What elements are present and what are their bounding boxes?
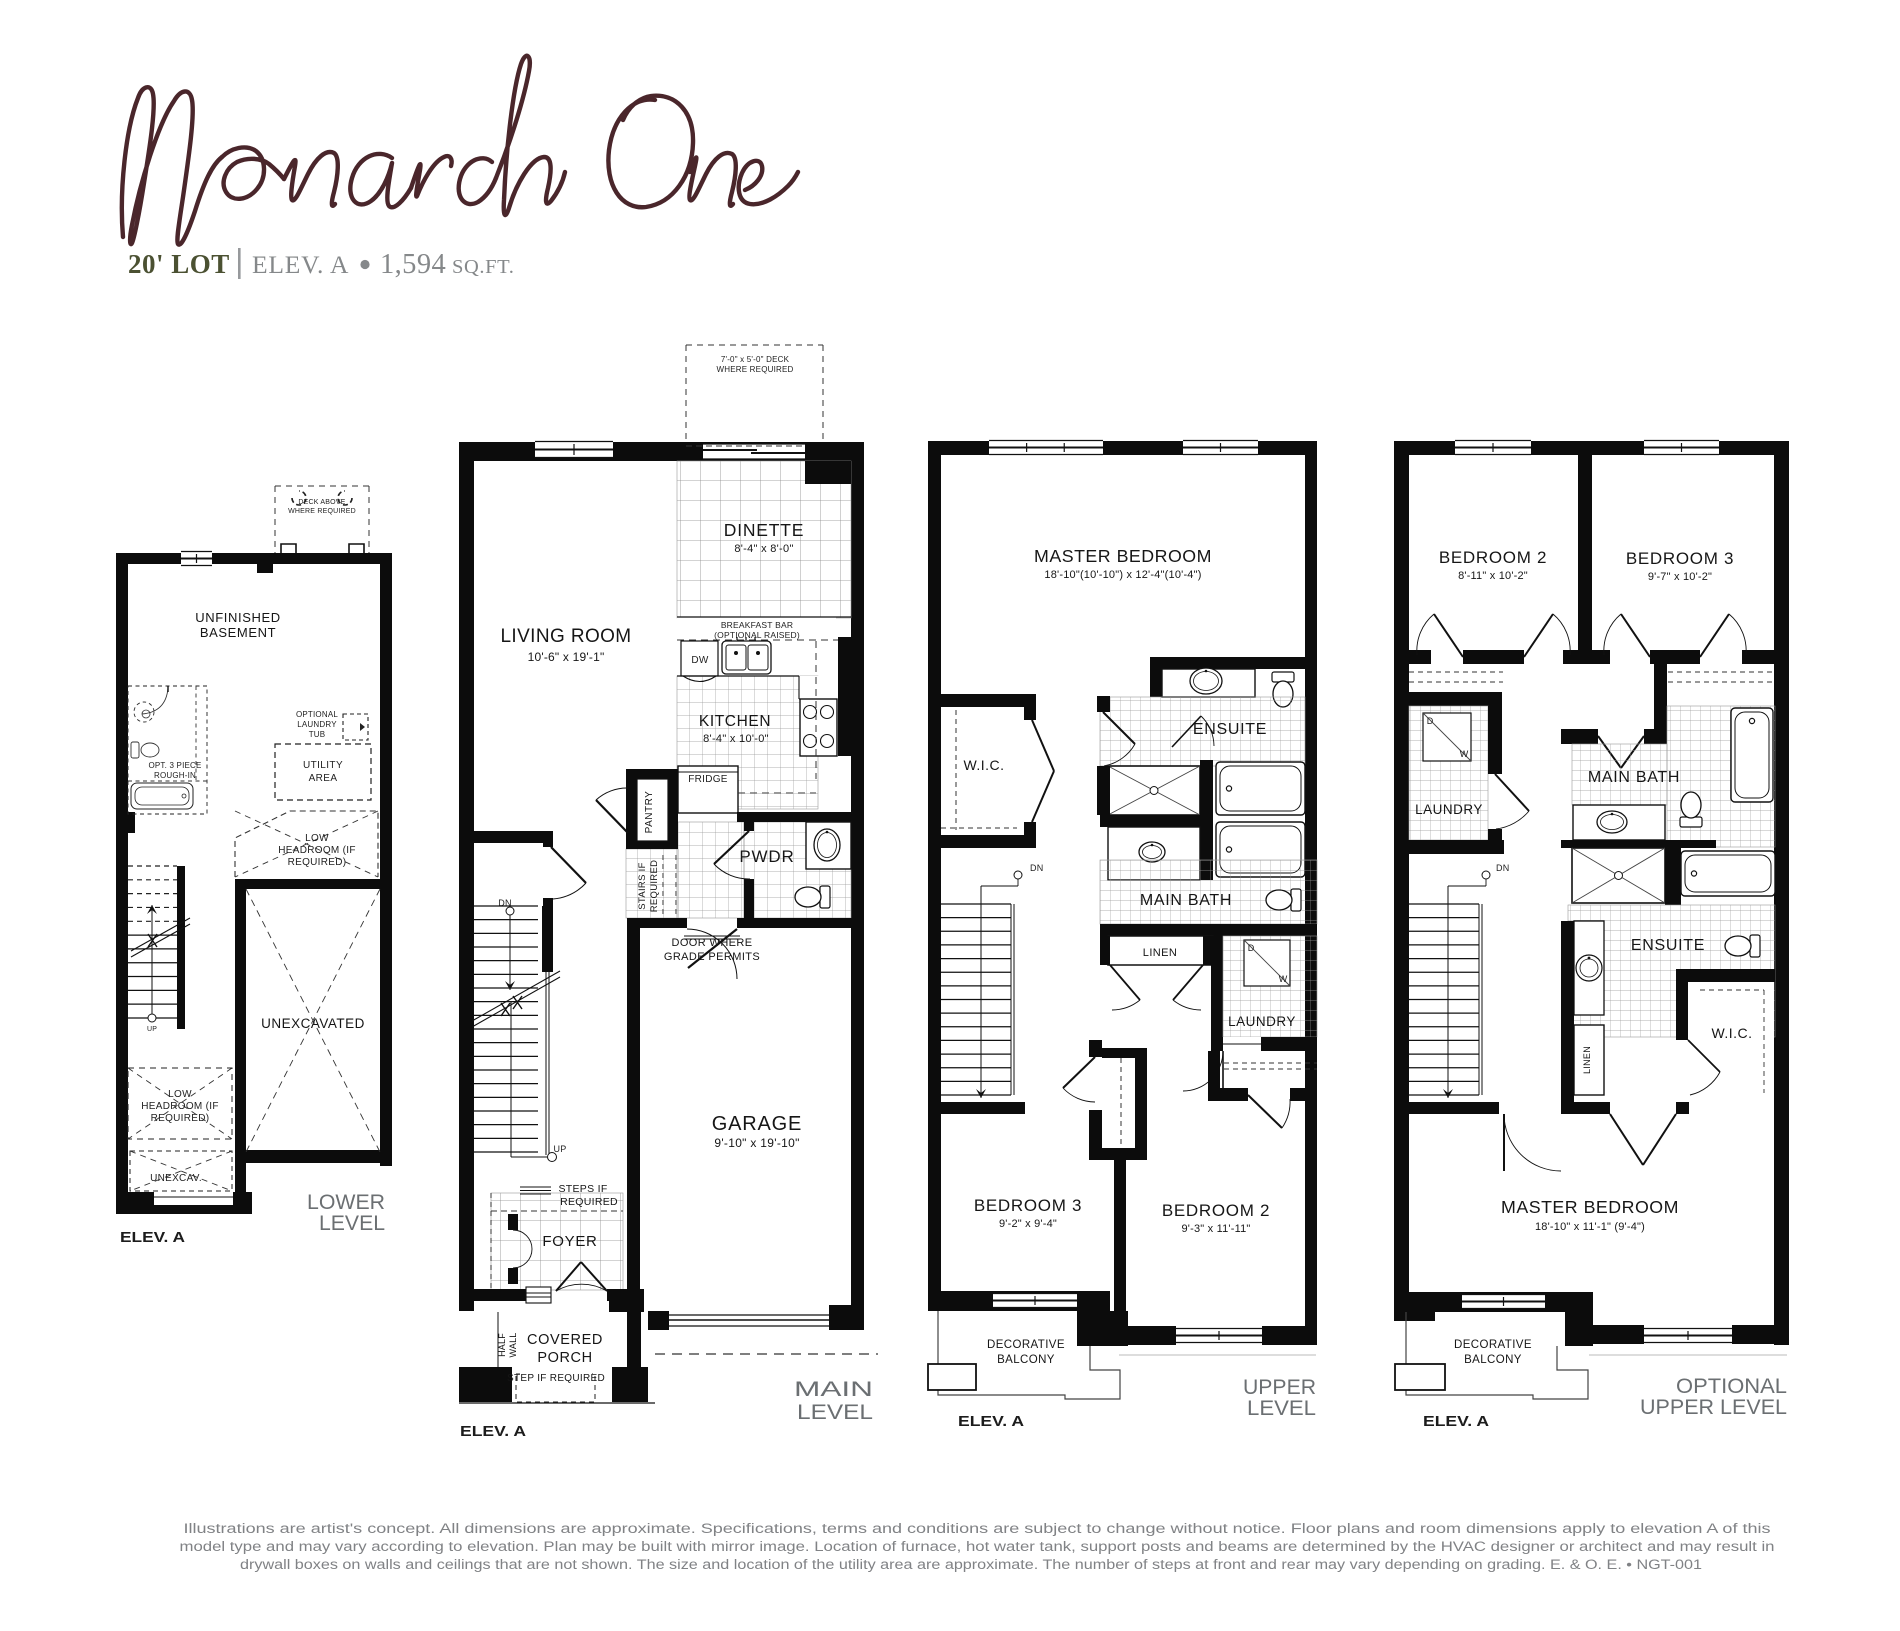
svg-text:DINETTE: DINETTE <box>724 520 804 540</box>
svg-text:REQUIRED: REQUIRED <box>649 860 660 913</box>
svg-text:drywall boxes on walls and cei: drywall boxes on walls and ceilings that… <box>240 1557 1702 1573</box>
svg-text:FOYER: FOYER <box>542 1233 597 1250</box>
svg-text:OPTIONAL: OPTIONAL <box>296 710 338 719</box>
svg-text:STEPS IF: STEPS IF <box>558 1183 607 1195</box>
svg-text:BALCONY: BALCONY <box>997 1354 1055 1366</box>
svg-text:UPPER LEVEL: UPPER LEVEL <box>1640 1395 1787 1419</box>
svg-text:UP: UP <box>554 1144 567 1154</box>
svg-text:(OPTIONAL RAISED): (OPTIONAL RAISED) <box>714 630 800 640</box>
svg-text:8'-4" x 10'-0": 8'-4" x 10'-0" <box>703 733 769 745</box>
svg-text:COVERED: COVERED <box>527 1332 603 1348</box>
svg-text:BEDROOM 3: BEDROOM 3 <box>974 1196 1082 1215</box>
svg-text:ELEV. A: ELEV. A <box>120 1230 186 1246</box>
svg-text:HEADROOM (IF: HEADROOM (IF <box>278 845 356 856</box>
svg-text:REQUIRED): REQUIRED) <box>288 857 347 868</box>
svg-text:HALF: HALF <box>497 1333 507 1357</box>
svg-text:9'-2" x 9'-4": 9'-2" x 9'-4" <box>999 1218 1057 1230</box>
svg-text:W: W <box>1279 974 1288 984</box>
svg-text:ELEV. A: ELEV. A <box>958 1414 1025 1430</box>
svg-text:D: D <box>1427 716 1434 726</box>
svg-text:UNFINISHED: UNFINISHED <box>195 610 280 625</box>
svg-text:18'-10"(10'-10") x 12'-4"(10'-: 18'-10"(10'-10") x 12'-4"(10'-4") <box>1044 569 1201 581</box>
svg-text:PANTRY: PANTRY <box>644 791 655 834</box>
svg-text:STEP IF REQUIRED: STEP IF REQUIRED <box>507 1373 605 1384</box>
svg-text:HEADROOM (IF: HEADROOM (IF <box>141 1101 219 1112</box>
svg-text:MAIN BATH: MAIN BATH <box>1140 892 1232 909</box>
svg-text:KITCHEN: KITCHEN <box>699 713 771 730</box>
svg-text:W.I.C.: W.I.C. <box>963 757 1004 773</box>
svg-text:SQ.FT.: SQ.FT. <box>452 256 514 278</box>
svg-text:7'-0" x 5'-0" DECK: 7'-0" x 5'-0" DECK <box>721 355 790 364</box>
svg-text:DOOR WHERE: DOOR WHERE <box>672 937 753 949</box>
svg-text:BREAKFAST BAR: BREAKFAST BAR <box>721 620 793 630</box>
svg-text:DN: DN <box>1496 863 1509 873</box>
svg-text:ROUGH-IN: ROUGH-IN <box>154 771 196 780</box>
svg-text:9'-7" x 10'-2": 9'-7" x 10'-2" <box>1648 571 1712 583</box>
svg-text:BEDROOM 3: BEDROOM 3 <box>1626 549 1734 568</box>
svg-text:MASTER BEDROOM: MASTER BEDROOM <box>1501 1197 1679 1217</box>
svg-text:UNEXCAVATED: UNEXCAVATED <box>261 1016 365 1031</box>
svg-text:LAUNDRY: LAUNDRY <box>297 720 337 729</box>
svg-text:STAIRS IF: STAIRS IF <box>637 862 648 909</box>
svg-text:LEVEL: LEVEL <box>1247 1396 1316 1420</box>
svg-text:UP: UP <box>147 1026 157 1033</box>
svg-text:WHERE REQUIRED: WHERE REQUIRED <box>288 508 356 515</box>
svg-text:ENSUITE: ENSUITE <box>1631 937 1705 954</box>
svg-text:DN: DN <box>1030 863 1043 873</box>
svg-text:DECORATIVE: DECORATIVE <box>987 1339 1065 1351</box>
svg-text:BEDROOM 2: BEDROOM 2 <box>1162 1201 1270 1220</box>
svg-text:UNEXCAV.: UNEXCAV. <box>150 1173 202 1184</box>
svg-text:8'-11" x 10'-2": 8'-11" x 10'-2" <box>1458 570 1528 582</box>
svg-text:LINEN: LINEN <box>1143 947 1177 959</box>
svg-text:LINEN: LINEN <box>1582 1046 1592 1074</box>
svg-text:W: W <box>1460 749 1469 759</box>
svg-text:OPT. 3 PIECE: OPT. 3 PIECE <box>148 761 201 770</box>
svg-text:W.I.C.: W.I.C. <box>1711 1025 1752 1041</box>
svg-text:UTILITY: UTILITY <box>303 760 343 771</box>
svg-text:BEDROOM 2: BEDROOM 2 <box>1439 548 1547 567</box>
svg-text:MAIN: MAIN <box>794 1377 873 1401</box>
svg-text:TUB: TUB <box>309 730 326 739</box>
svg-text:DW: DW <box>691 655 709 666</box>
svg-text:18'-10" x 11'-1" (9'-4"): 18'-10" x 11'-1" (9'-4") <box>1535 1221 1645 1233</box>
svg-text:10'-6" x 19'-1": 10'-6" x 19'-1" <box>528 650 605 664</box>
svg-text:MASTER BEDROOM: MASTER BEDROOM <box>1034 546 1212 566</box>
svg-text:WHERE REQUIRED: WHERE REQUIRED <box>716 365 793 374</box>
svg-text:REQUIRED): REQUIRED) <box>151 1113 210 1124</box>
svg-text:LEVEL: LEVEL <box>797 1400 873 1424</box>
svg-text:PORCH: PORCH <box>537 1350 592 1366</box>
svg-text:20' LOT: 20' LOT <box>128 249 230 279</box>
svg-text:LIVING ROOM: LIVING ROOM <box>500 626 631 647</box>
svg-text:Illustrations are artist's con: Illustrations are artist's concept. All … <box>184 1521 1771 1537</box>
svg-text:ENSUITE: ENSUITE <box>1193 721 1267 738</box>
svg-text:LAUNDRY: LAUNDRY <box>1415 802 1483 817</box>
svg-text:LAUNDRY: LAUNDRY <box>1228 1014 1296 1029</box>
svg-text:GARAGE: GARAGE <box>712 1113 802 1135</box>
svg-text:GRADE PERMITS: GRADE PERMITS <box>664 951 760 963</box>
svg-text:PWDR: PWDR <box>739 847 794 866</box>
svg-text:D: D <box>1248 943 1255 953</box>
svg-text:ELEV. A: ELEV. A <box>252 250 349 279</box>
svg-text:BALCONY: BALCONY <box>1464 1354 1522 1366</box>
svg-text:WALL: WALL <box>508 1333 518 1358</box>
svg-text:REQUIRED: REQUIRED <box>560 1196 618 1208</box>
svg-text:DECORATIVE: DECORATIVE <box>1454 1339 1532 1351</box>
svg-text:LOW: LOW <box>305 833 329 844</box>
svg-text:LOW: LOW <box>168 1089 192 1100</box>
svg-text:MAIN BATH: MAIN BATH <box>1588 769 1680 786</box>
svg-text:LEVEL: LEVEL <box>319 1211 385 1235</box>
svg-text:9'-10" x 19'-10": 9'-10" x 19'-10" <box>714 1136 799 1150</box>
svg-text:9'-3" x 11'-11": 9'-3" x 11'-11" <box>1181 1223 1250 1235</box>
svg-text:AREA: AREA <box>309 773 338 784</box>
svg-text:1,594: 1,594 <box>380 249 446 280</box>
svg-text:BASEMENT: BASEMENT <box>200 625 276 640</box>
svg-text:FRIDGE: FRIDGE <box>688 774 728 785</box>
svg-text:model type and may vary accord: model type and may vary according to ele… <box>180 1539 1775 1555</box>
svg-text:8'-4" x 8'-0": 8'-4" x 8'-0" <box>734 543 793 555</box>
svg-text:ELEV. A: ELEV. A <box>460 1424 527 1440</box>
svg-text:ELEV. A: ELEV. A <box>1423 1414 1490 1430</box>
